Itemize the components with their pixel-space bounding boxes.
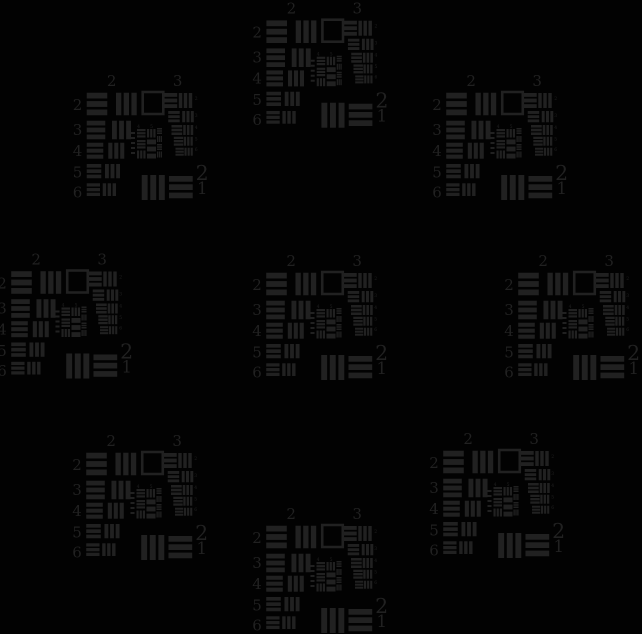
test-pattern-screen: 2323456212345645 [0,0,642,634]
usaf-1951-resolution-target-grid: 2323456212345645 [0,0,642,634]
